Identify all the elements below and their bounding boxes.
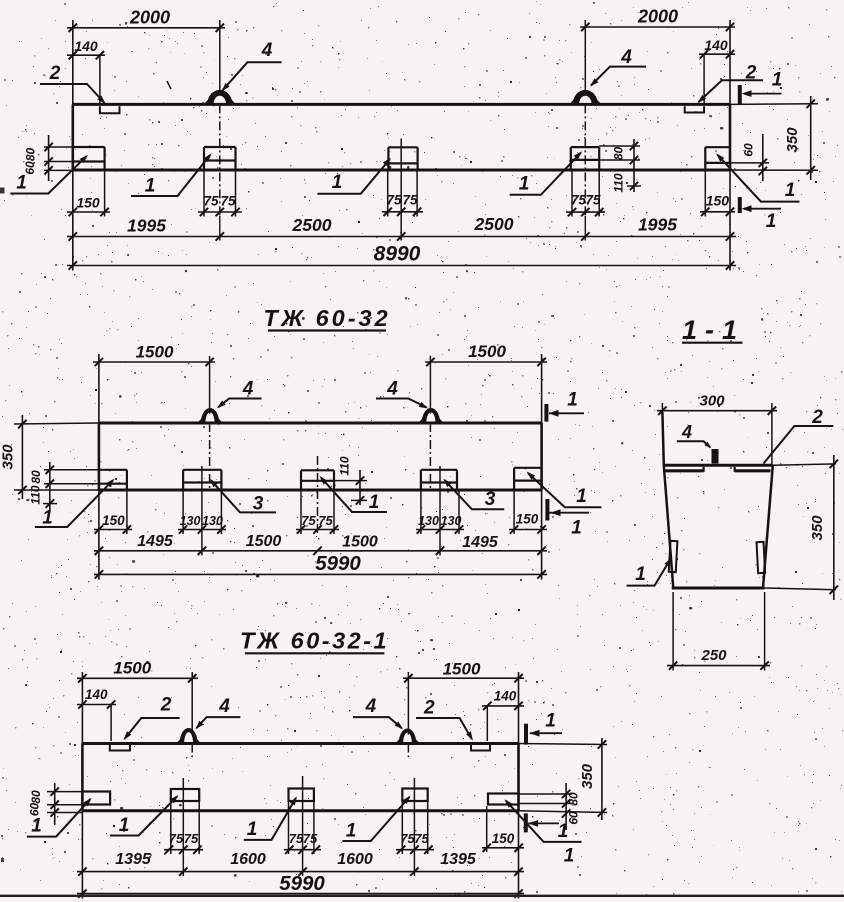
svg-text:1: 1: [766, 211, 777, 232]
svg-text:1: 1: [545, 711, 556, 732]
svg-text:60: 60: [742, 143, 756, 157]
svg-text:130: 130: [202, 514, 223, 528]
svg-text:2: 2: [49, 63, 61, 84]
svg-text:1: 1: [519, 174, 530, 195]
svg-text:1995: 1995: [638, 215, 677, 235]
svg-text:1500: 1500: [342, 534, 378, 551]
svg-text:350: 350: [579, 763, 596, 789]
svg-text:1: 1: [369, 492, 380, 513]
svg-text:1495: 1495: [462, 534, 499, 551]
svg-text:140: 140: [74, 38, 98, 54]
svg-text:1: 1: [119, 815, 130, 836]
svg-text:4: 4: [242, 379, 254, 400]
svg-text:75: 75: [301, 513, 316, 528]
svg-text:4: 4: [261, 40, 273, 61]
svg-text:4: 4: [681, 422, 692, 442]
svg-text:1: 1: [42, 508, 53, 529]
svg-text:250: 250: [700, 647, 727, 664]
svg-text:1: 1: [571, 518, 582, 539]
svg-text:2000: 2000: [637, 7, 678, 27]
svg-text:110: 110: [612, 173, 626, 192]
svg-text:ТЖ 60-32: ТЖ 60-32: [263, 305, 390, 331]
svg-text:140: 140: [85, 687, 108, 702]
svg-text:75: 75: [318, 513, 333, 528]
svg-text:350: 350: [809, 515, 826, 541]
svg-text:75: 75: [220, 194, 236, 209]
svg-text:2: 2: [160, 695, 172, 716]
svg-text:1: 1: [576, 486, 587, 507]
svg-text:150: 150: [76, 195, 100, 211]
svg-text:1: 1: [785, 180, 796, 201]
svg-text:75: 75: [402, 193, 418, 208]
svg-text:75: 75: [303, 831, 318, 846]
svg-text:4: 4: [365, 696, 377, 717]
svg-text:150: 150: [102, 513, 125, 528]
svg-text:75: 75: [203, 194, 219, 209]
svg-text:1495: 1495: [137, 533, 174, 550]
svg-text:60: 60: [23, 161, 37, 175]
svg-text:2000: 2000: [129, 8, 170, 28]
svg-text:80: 80: [29, 790, 43, 804]
svg-text:1600: 1600: [337, 851, 373, 868]
svg-text:140: 140: [704, 37, 728, 53]
svg-text:1600: 1600: [230, 851, 266, 868]
svg-text:1: 1: [567, 390, 578, 411]
svg-text:2500: 2500: [474, 214, 514, 234]
svg-text:80: 80: [566, 792, 580, 806]
svg-text:2: 2: [423, 698, 435, 719]
svg-text:3: 3: [485, 489, 496, 510]
svg-text:150: 150: [492, 831, 515, 846]
svg-text:150: 150: [706, 193, 730, 209]
svg-text:1500: 1500: [113, 659, 151, 678]
svg-text:1395: 1395: [115, 851, 152, 868]
svg-text:60: 60: [28, 803, 42, 817]
svg-text:80: 80: [29, 470, 43, 484]
svg-text:60: 60: [566, 811, 580, 825]
svg-text:110: 110: [29, 485, 43, 504]
svg-text:80: 80: [612, 147, 626, 161]
svg-text:75: 75: [571, 193, 587, 208]
svg-text:75: 75: [289, 831, 304, 846]
svg-text:5990: 5990: [315, 552, 361, 575]
svg-text:1395: 1395: [440, 851, 477, 868]
svg-text:1: 1: [772, 70, 783, 91]
svg-text:1: 1: [247, 819, 258, 840]
svg-text:ТЖ 60-32-1: ТЖ 60-32-1: [240, 628, 389, 654]
svg-text:140: 140: [494, 689, 517, 704]
svg-text:4: 4: [620, 47, 632, 68]
svg-text:3: 3: [253, 494, 264, 515]
svg-text:1500: 1500: [246, 533, 282, 550]
svg-text:2: 2: [811, 407, 823, 428]
svg-text:4: 4: [386, 379, 398, 400]
svg-text:1: 1: [145, 176, 156, 197]
svg-text:1: 1: [346, 821, 357, 842]
svg-text:75: 75: [386, 193, 402, 208]
svg-text:300: 300: [699, 393, 725, 410]
svg-text:110: 110: [338, 456, 352, 475]
svg-text:150: 150: [516, 512, 539, 527]
svg-text:1: 1: [332, 172, 343, 193]
svg-text:1: 1: [564, 846, 575, 867]
svg-text:1: 1: [635, 564, 646, 585]
svg-text:2500: 2500: [292, 215, 332, 235]
svg-text:1: 1: [31, 816, 42, 837]
svg-text:1995: 1995: [127, 216, 166, 236]
svg-text:1500: 1500: [468, 342, 506, 361]
svg-text:75: 75: [184, 831, 199, 846]
svg-text:350: 350: [0, 444, 17, 470]
svg-text:350: 350: [784, 127, 801, 153]
svg-text:4: 4: [218, 696, 230, 717]
svg-text:80: 80: [24, 148, 38, 162]
svg-text:8990: 8990: [374, 243, 421, 266]
svg-text:1500: 1500: [136, 343, 174, 362]
svg-text:1500: 1500: [443, 660, 481, 679]
svg-text:5990: 5990: [279, 872, 325, 895]
svg-text:1-1: 1-1: [682, 315, 745, 345]
